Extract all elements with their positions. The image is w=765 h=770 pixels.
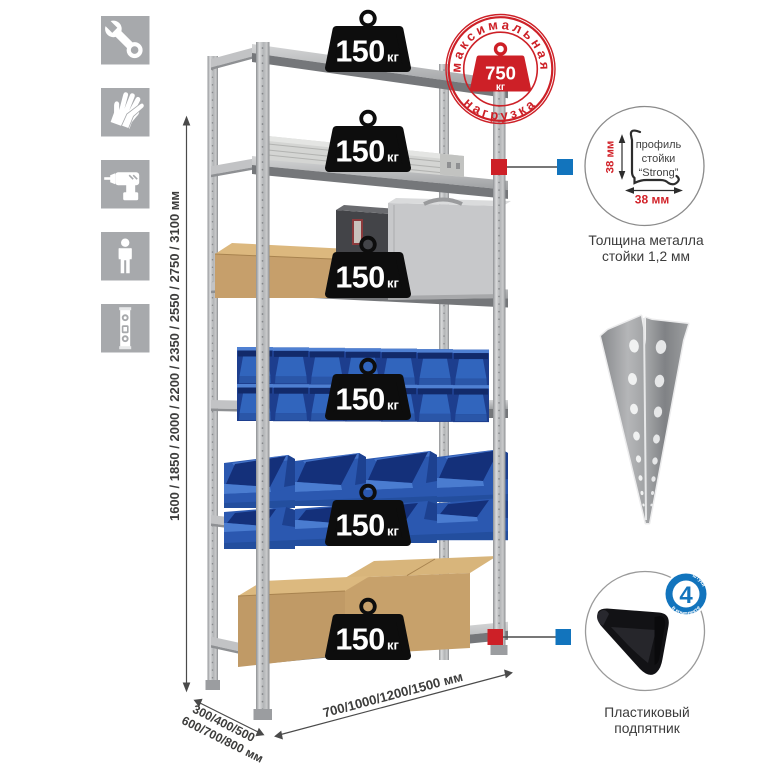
svg-text:38 мм: 38 мм bbox=[635, 193, 670, 207]
svg-text:стойки 1,2 мм: стойки 1,2 мм bbox=[602, 249, 690, 264]
svg-text:стойки: стойки bbox=[642, 153, 676, 165]
svg-text:Толщина металла: Толщина металла bbox=[588, 233, 704, 248]
svg-text:Пластиковый: Пластиковый bbox=[604, 705, 689, 720]
svg-text:кг: кг bbox=[496, 82, 505, 93]
svg-text:750: 750 bbox=[485, 63, 516, 84]
svg-text:4: 4 bbox=[679, 582, 693, 609]
svg-text:профиль: профиль bbox=[636, 139, 682, 151]
svg-text:1600 / 1850 / 2000 / 2200 / 23: 1600 / 1850 / 2000 / 2200 / 2350 / 2550 … bbox=[167, 191, 182, 521]
svg-text:“Strong”: “Strong” bbox=[639, 167, 679, 179]
svg-text:38 мм: 38 мм bbox=[605, 141, 617, 174]
svg-text:подпятник: подпятник bbox=[614, 721, 680, 736]
